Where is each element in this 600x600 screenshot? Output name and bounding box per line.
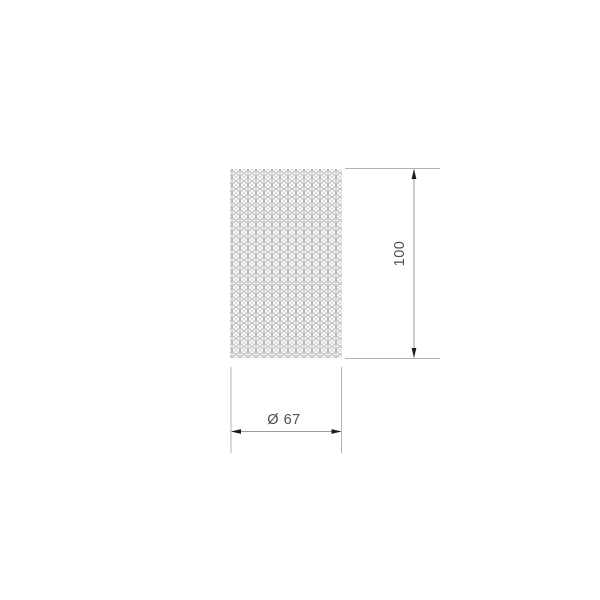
arrow-down-icon xyxy=(412,348,417,358)
dimension-drawing: 100 Ø 67 xyxy=(0,0,600,600)
arrow-up-icon xyxy=(412,169,417,179)
cylinder-body-texture xyxy=(230,169,342,358)
arrow-right-icon xyxy=(332,429,342,434)
height-dimension-label: 100 xyxy=(392,241,408,267)
diameter-dimension-label: Ø 67 xyxy=(267,412,300,428)
drawing-canvas: 100 Ø 67 xyxy=(0,0,600,600)
arrow-left-icon xyxy=(231,429,241,434)
